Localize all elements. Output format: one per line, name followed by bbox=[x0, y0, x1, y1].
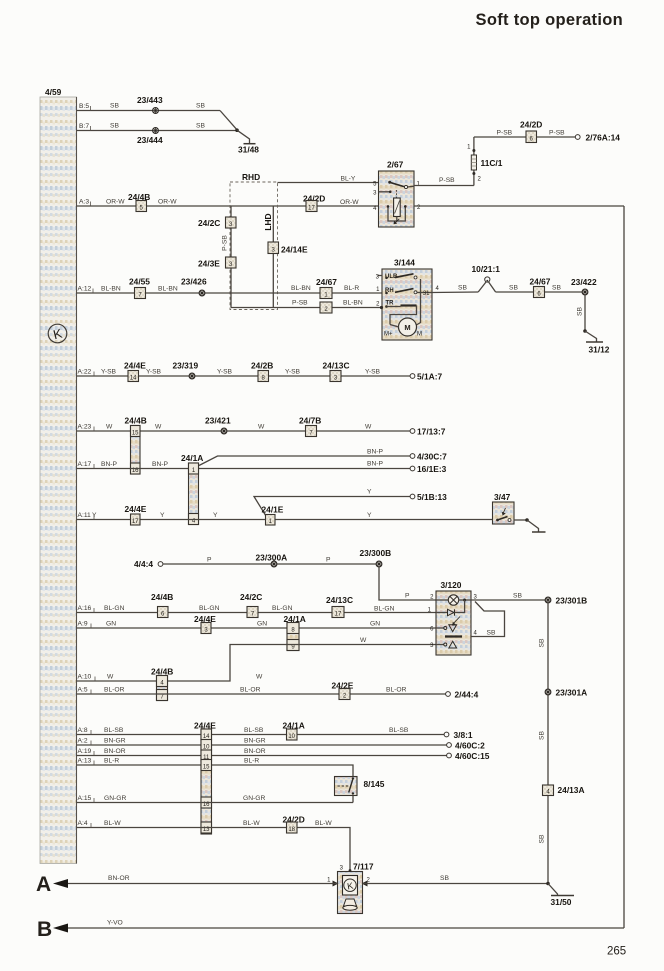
svg-text:23/443: 23/443 bbox=[137, 95, 163, 105]
svg-text:BN-P: BN-P bbox=[101, 461, 118, 468]
svg-text:24/14E: 24/14E bbox=[281, 245, 308, 255]
svg-text:SB: SB bbox=[440, 875, 449, 882]
svg-text:P-SB: P-SB bbox=[222, 235, 229, 251]
svg-text:10/21:1: 10/21:1 bbox=[472, 264, 501, 274]
svg-text:GN-GR: GN-GR bbox=[104, 795, 126, 802]
svg-text:BL-BN: BL-BN bbox=[158, 286, 178, 293]
svg-text:BL-SB: BL-SB bbox=[244, 727, 264, 734]
svg-text:BL-GN: BL-GN bbox=[272, 605, 293, 612]
svg-text:SB: SB bbox=[513, 593, 522, 600]
svg-text:3/144: 3/144 bbox=[394, 258, 415, 268]
svg-text:A:11: A:11 bbox=[78, 512, 92, 519]
svg-text:24/4B: 24/4B bbox=[125, 416, 147, 426]
svg-text:P-SB: P-SB bbox=[439, 177, 455, 184]
svg-text:A:13: A:13 bbox=[78, 758, 92, 765]
svg-text:A:23: A:23 bbox=[78, 424, 92, 431]
svg-text:BL-BN: BL-BN bbox=[291, 285, 311, 292]
svg-text:10: 10 bbox=[288, 734, 295, 740]
svg-text:18: 18 bbox=[288, 827, 295, 833]
svg-text:23/300B: 23/300B bbox=[360, 548, 392, 558]
svg-text:GN: GN bbox=[106, 621, 116, 628]
svg-text:14: 14 bbox=[130, 376, 137, 382]
svg-text:BN-GR: BN-GR bbox=[104, 738, 126, 745]
svg-text:3/8:1: 3/8:1 bbox=[454, 730, 473, 740]
svg-text:BL-BN: BL-BN bbox=[343, 300, 363, 307]
svg-text:BL-OR: BL-OR bbox=[104, 687, 125, 694]
svg-text:A:5: A:5 bbox=[78, 687, 88, 694]
svg-text:W: W bbox=[107, 674, 114, 681]
svg-text:23/421: 23/421 bbox=[205, 416, 231, 426]
svg-text:Y: Y bbox=[160, 512, 165, 519]
svg-text:P: P bbox=[405, 593, 410, 600]
svg-text:OR-W: OR-W bbox=[106, 199, 125, 206]
svg-text:SB: SB bbox=[539, 638, 546, 647]
svg-text:BN-OR: BN-OR bbox=[244, 748, 266, 755]
svg-text:3/47: 3/47 bbox=[494, 492, 511, 502]
svg-text:BL-W: BL-W bbox=[104, 820, 121, 827]
svg-text:BL-R: BL-R bbox=[244, 758, 259, 765]
svg-text:24/55: 24/55 bbox=[129, 277, 150, 287]
svg-text:A:16: A:16 bbox=[78, 605, 92, 612]
svg-text:4/60C:15: 4/60C:15 bbox=[455, 751, 490, 761]
svg-text:4/60C:2: 4/60C:2 bbox=[455, 741, 485, 751]
svg-text:BL-GN: BL-GN bbox=[199, 605, 220, 612]
svg-text:W: W bbox=[155, 424, 162, 431]
svg-text:OR-W: OR-W bbox=[158, 199, 177, 206]
svg-text:BL-SB: BL-SB bbox=[389, 727, 409, 734]
svg-text:Y-SB: Y-SB bbox=[365, 369, 381, 376]
svg-text:BL-R: BL-R bbox=[344, 285, 359, 292]
svg-text:A: A bbox=[36, 873, 51, 896]
svg-text:24/67: 24/67 bbox=[316, 277, 337, 287]
svg-text:BL-Y: BL-Y bbox=[341, 176, 356, 183]
svg-text:31/50: 31/50 bbox=[551, 897, 572, 907]
svg-text:BN-P: BN-P bbox=[367, 461, 384, 468]
svg-text:24/2C: 24/2C bbox=[198, 218, 220, 228]
svg-text:W: W bbox=[258, 424, 265, 431]
svg-text:M+: M+ bbox=[384, 332, 393, 338]
svg-text:BN-GR: BN-GR bbox=[244, 738, 266, 745]
svg-text:24/4E: 24/4E bbox=[125, 504, 147, 514]
svg-text:4/59: 4/59 bbox=[45, 87, 62, 97]
svg-text:5/1A:7: 5/1A:7 bbox=[417, 372, 442, 382]
svg-text:A:3: A:3 bbox=[79, 199, 89, 206]
svg-text:17: 17 bbox=[335, 612, 342, 618]
svg-text:2/76A:14: 2/76A:14 bbox=[586, 133, 621, 143]
svg-text:GN: GN bbox=[370, 621, 380, 628]
svg-text:A:4: A:4 bbox=[78, 820, 88, 827]
svg-text:A:17: A:17 bbox=[78, 461, 92, 468]
svg-text:SB: SB bbox=[110, 123, 119, 130]
svg-text:2/44:4: 2/44:4 bbox=[455, 690, 479, 700]
svg-text:A:12: A:12 bbox=[78, 286, 92, 293]
svg-text:BL-GN: BL-GN bbox=[374, 606, 395, 613]
svg-text:P-SB: P-SB bbox=[497, 130, 513, 137]
svg-text:B:5: B:5 bbox=[79, 103, 89, 110]
svg-text:24/3E: 24/3E bbox=[198, 259, 220, 269]
svg-text:31: 31 bbox=[423, 291, 430, 297]
svg-text:24/1E: 24/1E bbox=[262, 505, 284, 515]
svg-text:23/301A: 23/301A bbox=[556, 688, 588, 698]
svg-text:W: W bbox=[360, 637, 367, 644]
svg-text:24/4B: 24/4B bbox=[151, 592, 173, 602]
svg-text:4/30C:7: 4/30C:7 bbox=[417, 452, 447, 462]
svg-text:P-SB: P-SB bbox=[549, 130, 565, 137]
svg-text:P: P bbox=[207, 557, 212, 564]
svg-text:LHD: LHD bbox=[263, 213, 273, 230]
svg-text:15: 15 bbox=[203, 765, 210, 771]
svg-text:A:10: A:10 bbox=[78, 674, 92, 681]
svg-text:GN-GR: GN-GR bbox=[243, 795, 265, 802]
svg-text:17/13:7: 17/13:7 bbox=[417, 427, 446, 437]
svg-text:B: B bbox=[37, 918, 52, 941]
svg-text:24/67: 24/67 bbox=[530, 277, 551, 287]
svg-text:GN: GN bbox=[257, 621, 267, 628]
svg-text:A:9: A:9 bbox=[78, 621, 88, 628]
svg-text:23/300A: 23/300A bbox=[256, 553, 288, 563]
svg-text:P: P bbox=[326, 557, 331, 564]
svg-text:BL-OR: BL-OR bbox=[386, 687, 407, 694]
svg-text:265: 265 bbox=[607, 946, 626, 958]
svg-text:W: W bbox=[106, 424, 113, 431]
svg-text:24/1A: 24/1A bbox=[181, 453, 203, 463]
svg-text:P-SB: P-SB bbox=[292, 300, 308, 307]
svg-text:23/426: 23/426 bbox=[181, 277, 207, 287]
svg-text:RHD: RHD bbox=[242, 172, 260, 182]
svg-text:Y: Y bbox=[92, 512, 97, 519]
svg-text:17: 17 bbox=[132, 519, 139, 525]
svg-text:2/67: 2/67 bbox=[387, 160, 404, 170]
svg-text:BN-P: BN-P bbox=[367, 449, 384, 456]
svg-text:23/319: 23/319 bbox=[173, 361, 199, 371]
svg-text:A:15: A:15 bbox=[78, 795, 92, 802]
svg-text:8/145: 8/145 bbox=[364, 779, 385, 789]
svg-text:SB: SB bbox=[539, 731, 546, 740]
svg-text:W: W bbox=[256, 674, 263, 681]
svg-text:A:22: A:22 bbox=[78, 369, 92, 376]
svg-text:23/422: 23/422 bbox=[571, 277, 597, 287]
svg-text:24/4E: 24/4E bbox=[124, 361, 146, 371]
svg-text:Y-VO: Y-VO bbox=[107, 920, 123, 927]
svg-text:Y-SB: Y-SB bbox=[101, 369, 117, 376]
svg-text:SB: SB bbox=[458, 285, 467, 292]
svg-text:23/301B: 23/301B bbox=[556, 596, 588, 606]
svg-text:B:7: B:7 bbox=[79, 123, 89, 130]
svg-text:24/2B: 24/2B bbox=[251, 361, 273, 371]
svg-text:BL-BN: BL-BN bbox=[101, 286, 121, 293]
svg-text:SB: SB bbox=[487, 630, 496, 637]
svg-text:SB: SB bbox=[110, 103, 119, 110]
svg-text:24/2C: 24/2C bbox=[240, 592, 262, 602]
svg-text:16/1E:3: 16/1E:3 bbox=[417, 464, 447, 474]
svg-text:BL-OR: BL-OR bbox=[240, 687, 261, 694]
svg-text:W: W bbox=[365, 424, 372, 431]
svg-text:24/13C: 24/13C bbox=[323, 361, 350, 371]
svg-text:BN-P: BN-P bbox=[152, 461, 169, 468]
svg-text:Soft top operation: Soft top operation bbox=[476, 11, 623, 29]
svg-text:24/2D: 24/2D bbox=[520, 120, 542, 130]
svg-text:A:8: A:8 bbox=[78, 727, 88, 734]
svg-text:M: M bbox=[417, 332, 422, 338]
svg-text:BL-W: BL-W bbox=[315, 820, 332, 827]
svg-text:24/13A: 24/13A bbox=[558, 785, 585, 795]
svg-text:SB: SB bbox=[196, 103, 205, 110]
svg-text:BL-W: BL-W bbox=[243, 820, 260, 827]
svg-text:17: 17 bbox=[308, 206, 315, 212]
svg-text:OR-W: OR-W bbox=[340, 199, 359, 206]
svg-text:11C/1: 11C/1 bbox=[481, 158, 503, 168]
svg-text:Y: Y bbox=[213, 512, 218, 519]
svg-text:3/120: 3/120 bbox=[441, 580, 462, 590]
svg-text:BN-OR: BN-OR bbox=[104, 748, 126, 755]
svg-text:7/117: 7/117 bbox=[353, 862, 374, 872]
svg-text:SB: SB bbox=[539, 834, 546, 843]
svg-text:SB: SB bbox=[552, 285, 561, 292]
svg-text:M: M bbox=[404, 323, 410, 332]
svg-text:BL-R: BL-R bbox=[104, 758, 119, 765]
svg-text:SB: SB bbox=[196, 123, 205, 130]
svg-text:A:2: A:2 bbox=[78, 738, 88, 745]
svg-text:31/48: 31/48 bbox=[238, 145, 259, 155]
svg-text:A:19: A:19 bbox=[78, 748, 92, 755]
svg-text:23/444: 23/444 bbox=[137, 135, 163, 145]
svg-text:24/7B: 24/7B bbox=[299, 416, 321, 426]
svg-text:4/4:4: 4/4:4 bbox=[134, 559, 153, 569]
svg-text:BL-SB: BL-SB bbox=[104, 727, 124, 734]
svg-text:SB: SB bbox=[509, 285, 518, 292]
svg-text:31/12: 31/12 bbox=[589, 345, 610, 355]
svg-text:Y: Y bbox=[367, 489, 372, 496]
svg-text:5/1B:13: 5/1B:13 bbox=[417, 492, 447, 502]
svg-text:Y: Y bbox=[367, 512, 372, 519]
svg-text:24/13C: 24/13C bbox=[326, 595, 353, 605]
svg-text:BL-GN: BL-GN bbox=[104, 605, 125, 612]
svg-text:Y-SB: Y-SB bbox=[146, 369, 162, 376]
svg-text:SB: SB bbox=[577, 307, 584, 316]
svg-text:Y-SB: Y-SB bbox=[285, 369, 301, 376]
svg-text:15: 15 bbox=[132, 431, 139, 437]
svg-text:BN-OR: BN-OR bbox=[108, 875, 130, 882]
svg-text:Y-SB: Y-SB bbox=[217, 369, 233, 376]
